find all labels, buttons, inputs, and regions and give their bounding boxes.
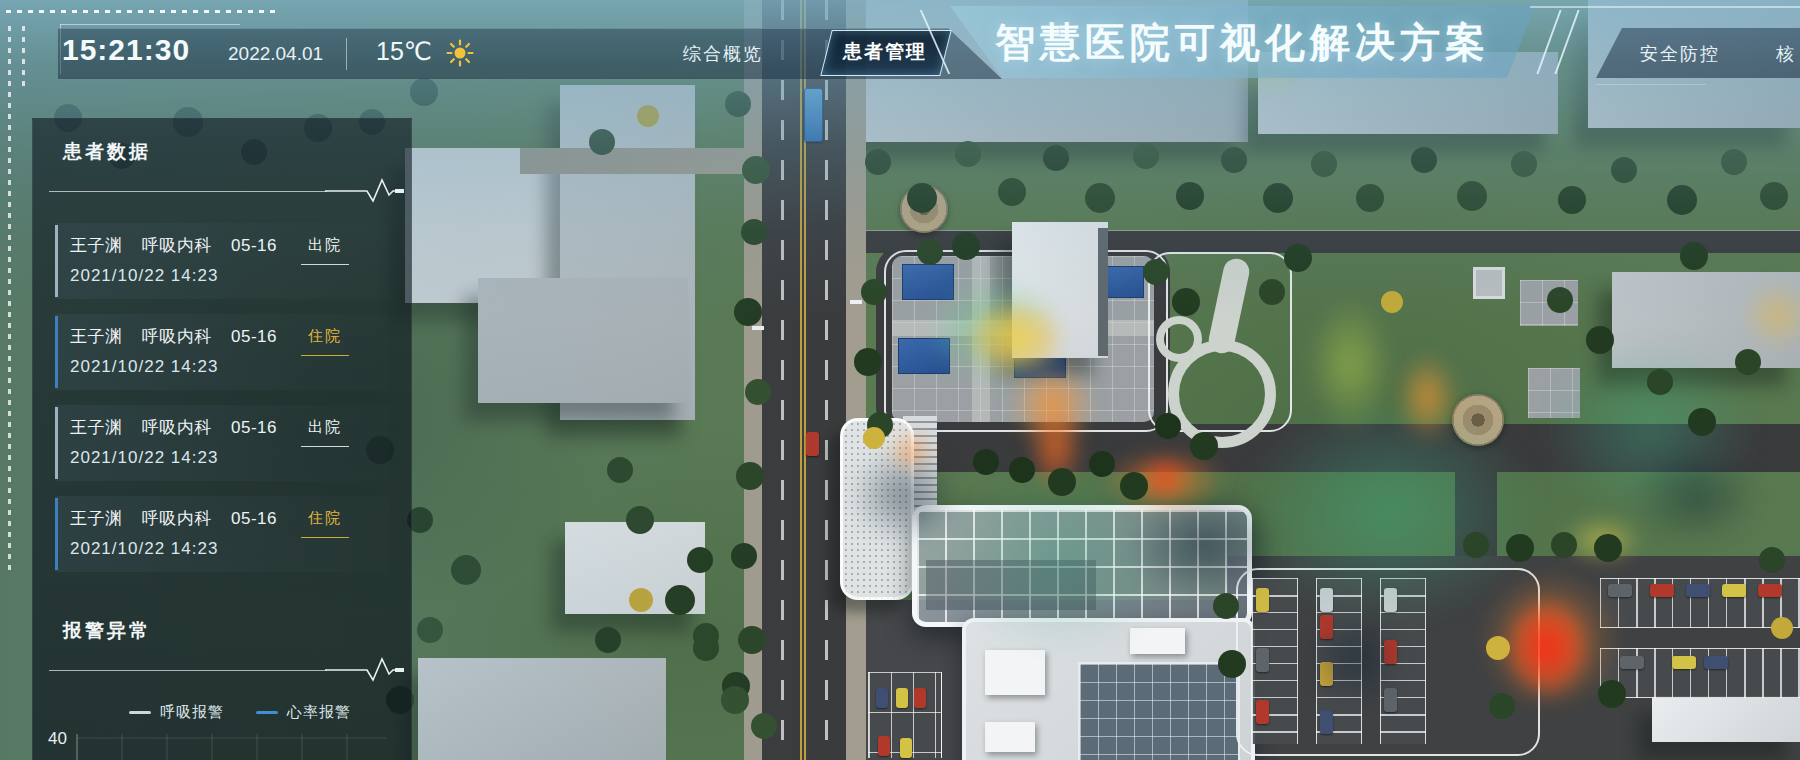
patient-card[interactable]: 王子渊 呼吸内科 05-16 2021/10/22 14:23 住院 <box>55 314 389 390</box>
road-marker <box>850 300 862 304</box>
patient-list: 王子渊 呼吸内科 05-16 2021/10/22 14:23 出院 王子渊 呼… <box>55 223 389 572</box>
heatmap-blob <box>1290 270 1410 460</box>
building <box>418 658 666 760</box>
patient-datetime: 2021/10/22 14:23 <box>70 448 389 468</box>
patient-section-header: 患者数据 <box>33 119 411 208</box>
card-accent-bar <box>55 498 58 570</box>
section-underline <box>49 191 327 192</box>
alarm-section-header: 报警异常 <box>33 598 411 687</box>
legend-item-breath[interactable]: 呼吸报警 <box>129 703 224 722</box>
dotted-line-left <box>8 26 11 570</box>
status-badge[interactable]: 住院 <box>301 327 349 356</box>
alarm-chart-area: 402713 <box>41 726 403 760</box>
patient-room: 05-16 <box>231 418 277 437</box>
deco-line <box>1596 84 1706 85</box>
pulse-icon <box>325 174 405 208</box>
patient-card[interactable]: 王子渊 呼吸内科 05-16 2021/10/22 14:23 出院 <box>55 223 389 299</box>
building <box>478 278 688 403</box>
heatmap-blob <box>1290 600 1420 720</box>
status-badge[interactable]: 出院 <box>301 418 349 447</box>
patient-name: 王子渊 <box>70 418 123 437</box>
patient-datetime: 2021/10/22 14:23 <box>70 539 389 559</box>
sidewalk <box>744 0 762 760</box>
patient-card[interactable]: 王子渊 呼吸内科 05-16 2021/10/22 14:23 住院 <box>55 496 389 572</box>
patient-department: 呼吸内科 <box>142 236 212 255</box>
playground-ring <box>1156 316 1202 362</box>
dotted-line-top <box>6 10 278 13</box>
garden-pad <box>1473 267 1505 299</box>
roof-box <box>985 722 1035 752</box>
chart-legend: 呼吸报警 心率报警 <box>129 703 411 722</box>
patient-room: 05-16 <box>231 236 277 255</box>
tab-security[interactable]: 安全防控 <box>1620 36 1740 72</box>
legend-dash-breath <box>129 711 151 714</box>
alarm-line-chart: 402713 <box>41 726 387 760</box>
car <box>876 688 888 708</box>
heatmap-blob <box>1135 452 1195 504</box>
tab-right-partial[interactable]: 核 <box>1776 36 1800 72</box>
patient-department: 呼吸内科 <box>142 509 212 528</box>
screen: 15:21:30 2022.04.01 15℃ 综合概览 患者管理 智慧医院可视… <box>0 0 1800 760</box>
deco-line <box>60 24 240 25</box>
legend-dash-heart <box>256 711 278 714</box>
car <box>1722 584 1746 597</box>
section-underline <box>49 670 327 671</box>
car <box>1650 584 1674 597</box>
patient-data-panel: 患者数据 王子渊 呼吸内科 05-16 2021/10/22 14:23 出院 <box>32 118 412 760</box>
header-divider <box>346 38 347 70</box>
clock-date: 2022.04.01 <box>228 43 323 65</box>
building <box>1652 696 1800 742</box>
sidewalk-path <box>520 148 746 174</box>
car <box>1758 584 1782 597</box>
car <box>896 688 908 708</box>
legend-label-heart: 心率报警 <box>287 703 351 722</box>
patient-datetime: 2021/10/22 14:23 <box>70 266 389 286</box>
patient-section-title: 患者数据 <box>63 139 411 165</box>
heatmap-blob <box>1545 505 1660 575</box>
patient-room: 05-16 <box>231 327 277 346</box>
card-accent-bar <box>55 225 58 297</box>
clock-time: 15:21:30 <box>62 33 190 67</box>
car <box>878 736 890 756</box>
heatmap-blob <box>880 425 942 477</box>
car <box>1256 700 1269 724</box>
patient-card[interactable]: 王子渊 呼吸内科 05-16 2021/10/22 14:23 出院 <box>55 405 389 481</box>
patient-name: 王子渊 <box>70 509 123 528</box>
temperature-value: 15℃ <box>376 37 432 66</box>
road-marker <box>752 326 764 330</box>
building-facade <box>1098 228 1108 356</box>
legend-label-breath: 呼吸报警 <box>160 703 224 722</box>
lane-marking <box>825 0 828 760</box>
car <box>900 738 912 758</box>
car-on-road <box>806 432 819 456</box>
pulse-icon <box>325 653 405 687</box>
car <box>1256 648 1269 672</box>
bus-icon <box>804 88 823 142</box>
sun-icon <box>446 39 474 71</box>
tab-patients[interactable]: 患者管理 <box>826 30 944 74</box>
sidewalk <box>846 0 866 760</box>
dotted-line-left-short <box>22 26 25 90</box>
alarm-section-title: 报警异常 <box>63 618 411 644</box>
patient-name: 王子渊 <box>70 236 123 255</box>
car <box>1704 656 1728 669</box>
lane-marking <box>781 0 784 760</box>
tab-overview[interactable]: 综合概览 <box>668 36 778 72</box>
fountain <box>900 185 948 233</box>
status-badge[interactable]: 住院 <box>301 509 349 538</box>
building <box>565 522 705 614</box>
patient-name: 王子渊 <box>70 327 123 346</box>
car <box>1686 584 1710 597</box>
patient-department: 呼吸内科 <box>142 418 212 437</box>
card-accent-bar <box>55 316 58 388</box>
page-title: 智慧医院可视化解决方案 <box>950 6 1535 78</box>
svg-text:40: 40 <box>48 729 67 748</box>
patient-datetime: 2021/10/22 14:23 <box>70 357 389 377</box>
car <box>914 688 926 708</box>
deco-line <box>1530 6 1800 8</box>
center-line <box>800 0 802 760</box>
status-badge[interactable]: 出院 <box>301 236 349 265</box>
heatmap-blob <box>1495 585 1600 710</box>
patient-room: 05-16 <box>231 509 277 528</box>
patient-department: 呼吸内科 <box>142 327 212 346</box>
legend-item-heart[interactable]: 心率报警 <box>256 703 351 722</box>
card-accent-bar <box>55 407 58 479</box>
car <box>1672 656 1696 669</box>
